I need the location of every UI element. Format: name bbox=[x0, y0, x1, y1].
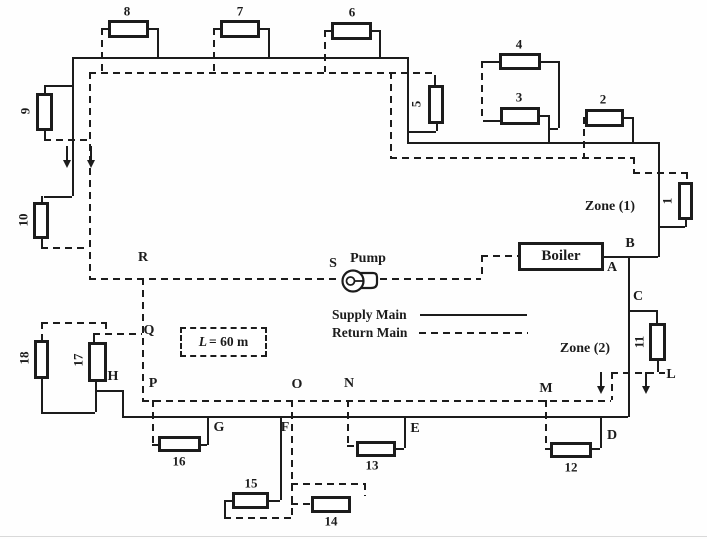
radiator-7 bbox=[220, 20, 260, 38]
return-main-line bbox=[419, 332, 528, 334]
flow-direction-arrow bbox=[66, 146, 68, 161]
legend-return-main: Return Main bbox=[332, 326, 407, 340]
radiator-label-16: 16 bbox=[173, 455, 186, 468]
supply-main-line bbox=[95, 390, 122, 392]
radiator-18 bbox=[34, 340, 49, 379]
radiator-3 bbox=[500, 107, 540, 125]
return-main-line bbox=[93, 333, 142, 335]
supply-main-line bbox=[407, 142, 658, 144]
return-main-line bbox=[291, 483, 364, 485]
return-main-line bbox=[380, 278, 481, 280]
supply-main-line bbox=[436, 124, 438, 131]
supply-main-line bbox=[260, 28, 268, 30]
supply-main-line bbox=[658, 226, 685, 228]
radiator-label-4: 4 bbox=[516, 38, 523, 51]
supply-main-line bbox=[558, 61, 560, 128]
supply-main-line bbox=[41, 379, 43, 412]
supply-main-line bbox=[548, 115, 550, 143]
supply-main-line bbox=[269, 500, 280, 502]
junction-label-M: M bbox=[539, 382, 552, 396]
return-main-line bbox=[481, 255, 483, 278]
return-main-line bbox=[291, 503, 311, 505]
return-main-line bbox=[324, 30, 326, 72]
radiator-label-2: 2 bbox=[600, 93, 607, 106]
radiator-label-18: 18 bbox=[18, 352, 31, 365]
radiator-label-17: 17 bbox=[72, 354, 85, 367]
supply-main-line bbox=[372, 30, 379, 32]
radiator-16 bbox=[158, 436, 201, 452]
supply-main-line bbox=[268, 28, 270, 58]
supply-main-line bbox=[404, 416, 406, 448]
radiator-6 bbox=[331, 22, 372, 40]
return-main-line bbox=[224, 517, 291, 519]
supply-main-line bbox=[41, 239, 43, 247]
return-main-line bbox=[89, 278, 341, 280]
supply-main-line bbox=[72, 57, 407, 59]
flow-direction-arrow bbox=[645, 372, 647, 387]
radiator-10 bbox=[33, 202, 49, 239]
radiator-label-13: 13 bbox=[366, 459, 379, 472]
return-main-line bbox=[686, 172, 688, 182]
junction-label-H: H bbox=[108, 370, 119, 384]
supply-main-line bbox=[592, 448, 600, 450]
radiator-11 bbox=[649, 323, 666, 361]
radiator-9 bbox=[36, 93, 53, 131]
radiator-13 bbox=[356, 441, 396, 457]
supply-main-line bbox=[379, 30, 381, 58]
supply-main-line bbox=[685, 220, 687, 227]
supply-main-line bbox=[603, 256, 658, 258]
radiator-label-9: 9 bbox=[19, 108, 32, 115]
supply-main-line bbox=[541, 61, 558, 63]
return-main-line bbox=[41, 247, 89, 249]
supply-main-line bbox=[656, 310, 658, 323]
supply-main-line bbox=[420, 314, 527, 316]
return-main-line bbox=[101, 28, 103, 72]
return-main-line bbox=[213, 28, 215, 72]
supply-main-line bbox=[95, 382, 97, 412]
page-edge-rule bbox=[0, 536, 707, 537]
supply-main-line bbox=[207, 416, 209, 445]
junction-label-Q: Q bbox=[144, 324, 155, 338]
flow-direction-arrow bbox=[90, 146, 92, 161]
length-value: = 60 m bbox=[209, 334, 248, 350]
supply-main-line bbox=[540, 115, 548, 117]
junction-label-L: L bbox=[666, 368, 675, 382]
supply-main-line bbox=[483, 120, 500, 122]
return-main-line bbox=[347, 400, 349, 445]
junction-label-O: O bbox=[292, 378, 303, 392]
return-main-line bbox=[611, 372, 613, 400]
junction-label-A: A bbox=[607, 261, 617, 275]
radiator-label-7: 7 bbox=[237, 5, 244, 18]
radiator-label-11: 11 bbox=[633, 336, 646, 348]
radiator-1 bbox=[678, 182, 693, 220]
supply-main-line bbox=[600, 416, 602, 448]
return-main-line bbox=[142, 278, 144, 400]
zone1-label: Zone (1) bbox=[585, 200, 635, 214]
supply-main-line bbox=[396, 448, 404, 450]
return-main-line bbox=[481, 61, 483, 120]
return-main-line bbox=[152, 400, 154, 444]
radiator-5 bbox=[428, 85, 444, 124]
boiler-box: Boiler bbox=[518, 242, 604, 271]
radiator-label-10: 10 bbox=[17, 214, 30, 227]
return-main-line bbox=[89, 72, 433, 74]
supply-main-line bbox=[122, 416, 628, 418]
radiator-label-15: 15 bbox=[245, 477, 258, 490]
return-main-line bbox=[390, 157, 633, 159]
supply-main-line bbox=[41, 412, 95, 414]
radiator-2 bbox=[585, 109, 624, 127]
supply-main-line bbox=[632, 117, 634, 143]
zone2-label: Zone (2) bbox=[560, 342, 610, 356]
supply-main-line bbox=[483, 61, 500, 63]
supply-main-line bbox=[122, 390, 124, 417]
radiator-label-12: 12 bbox=[565, 461, 578, 474]
junction-label-D: D bbox=[607, 429, 617, 443]
return-main-line bbox=[142, 400, 611, 402]
radiator-label-14: 14 bbox=[325, 515, 338, 528]
junction-label-B: B bbox=[625, 237, 634, 251]
radiator-15 bbox=[232, 492, 269, 509]
supply-main-line bbox=[657, 361, 659, 372]
return-main-line bbox=[347, 445, 356, 447]
radiator-17 bbox=[88, 342, 107, 382]
junction-label-N: N bbox=[344, 377, 354, 391]
return-main-line bbox=[633, 172, 686, 174]
radiator-12 bbox=[550, 442, 592, 458]
piping-diagram: Boiler Pump Zone (1) Zone (2) L = 60 m S… bbox=[0, 0, 707, 539]
supply-main-line bbox=[72, 57, 74, 196]
return-main-line bbox=[44, 139, 89, 141]
return-main-line bbox=[390, 72, 392, 157]
return-main-line bbox=[89, 72, 91, 278]
junction-label-P: P bbox=[149, 377, 158, 391]
junction-label-R: R bbox=[138, 251, 148, 265]
supply-main-line bbox=[44, 85, 72, 87]
supply-main-line bbox=[434, 75, 436, 85]
junction-label-S: S bbox=[329, 257, 337, 271]
return-main-line bbox=[633, 157, 635, 172]
supply-main-line bbox=[149, 28, 157, 30]
return-main-line bbox=[41, 322, 43, 340]
return-main-line bbox=[611, 372, 665, 374]
legend-supply-main: Supply Main bbox=[332, 308, 407, 322]
junction-label-G: G bbox=[214, 421, 225, 435]
radiator-label-1: 1 bbox=[661, 198, 674, 205]
radiator-label-6: 6 bbox=[349, 6, 356, 19]
boiler-label: Boiler bbox=[541, 248, 580, 265]
radiator-label-3: 3 bbox=[516, 91, 523, 104]
return-main-line bbox=[291, 400, 293, 517]
radiator-14 bbox=[311, 496, 351, 513]
supply-main-line bbox=[224, 500, 226, 517]
junction-label-E: E bbox=[410, 422, 419, 436]
supply-main-line bbox=[157, 28, 159, 58]
pump-label: Pump bbox=[350, 252, 386, 266]
return-main-line bbox=[545, 400, 547, 448]
radiator-label-5: 5 bbox=[410, 101, 423, 108]
supply-main-line bbox=[44, 196, 72, 198]
pump-icon bbox=[336, 265, 384, 299]
return-main-line bbox=[481, 255, 518, 257]
junction-label-C: C bbox=[633, 290, 643, 304]
return-main-line bbox=[105, 322, 107, 333]
length-symbol: L bbox=[199, 334, 207, 350]
supply-main-line bbox=[628, 256, 630, 417]
supply-main-line bbox=[44, 131, 46, 139]
junction-label-F: F bbox=[281, 421, 290, 435]
supply-main-line bbox=[407, 131, 436, 133]
flow-direction-arrow bbox=[600, 372, 602, 387]
return-main-line bbox=[41, 322, 105, 324]
supply-main-line bbox=[624, 117, 632, 119]
radiator-8 bbox=[108, 20, 149, 38]
supply-main-line bbox=[628, 310, 656, 312]
pipe-length-note: L = 60 m bbox=[180, 327, 267, 357]
radiator-4 bbox=[499, 53, 541, 70]
return-main-line bbox=[364, 483, 366, 496]
radiator-label-8: 8 bbox=[124, 5, 131, 18]
